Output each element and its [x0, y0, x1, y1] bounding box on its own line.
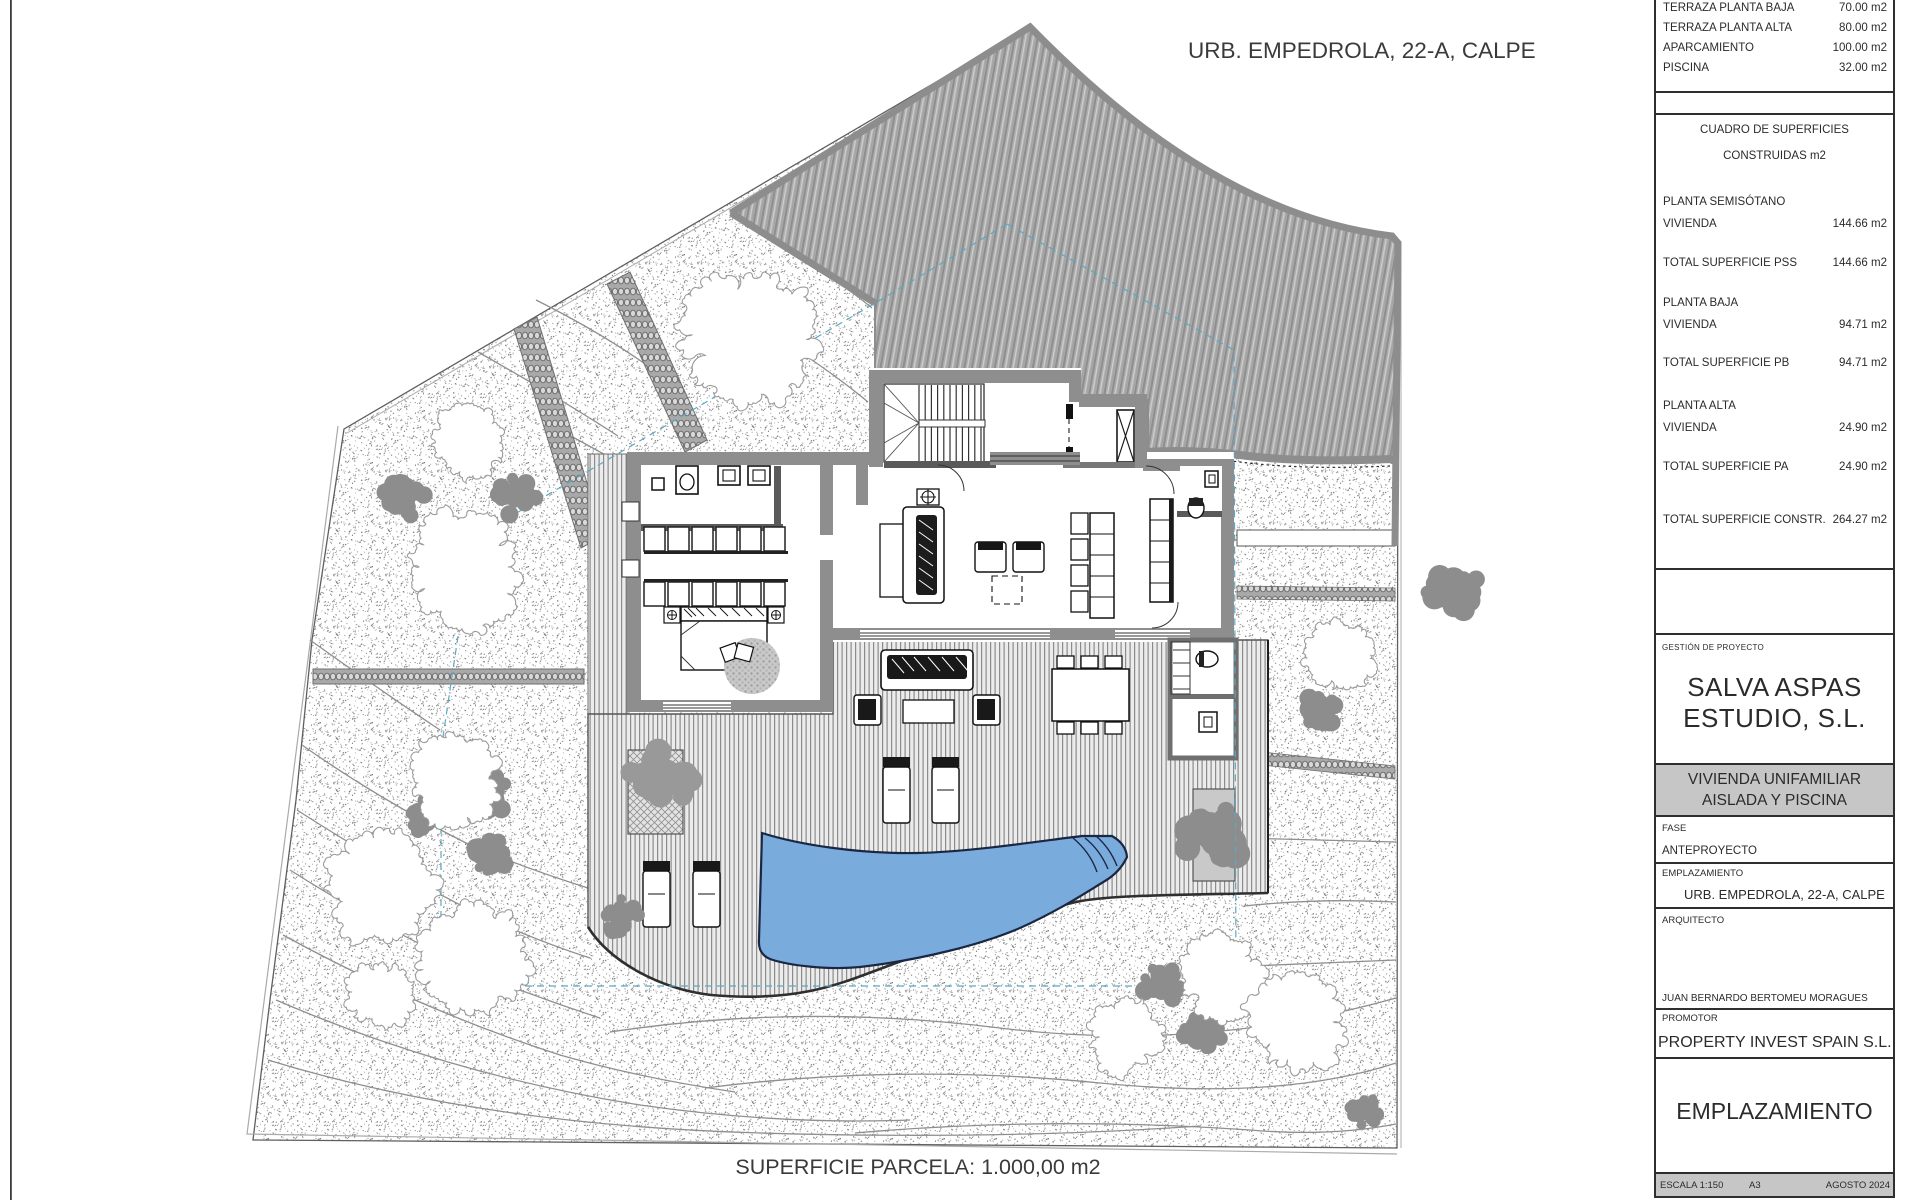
svg-text:URB. EMPEDROLA, 22-A, CALPE: URB. EMPEDROLA, 22-A, CALPE — [1188, 38, 1536, 63]
svg-text:SUPERFICIE PARCELA: 1.000,00 m: SUPERFICIE PARCELA: 1.000,00 m2 — [735, 1155, 1100, 1179]
